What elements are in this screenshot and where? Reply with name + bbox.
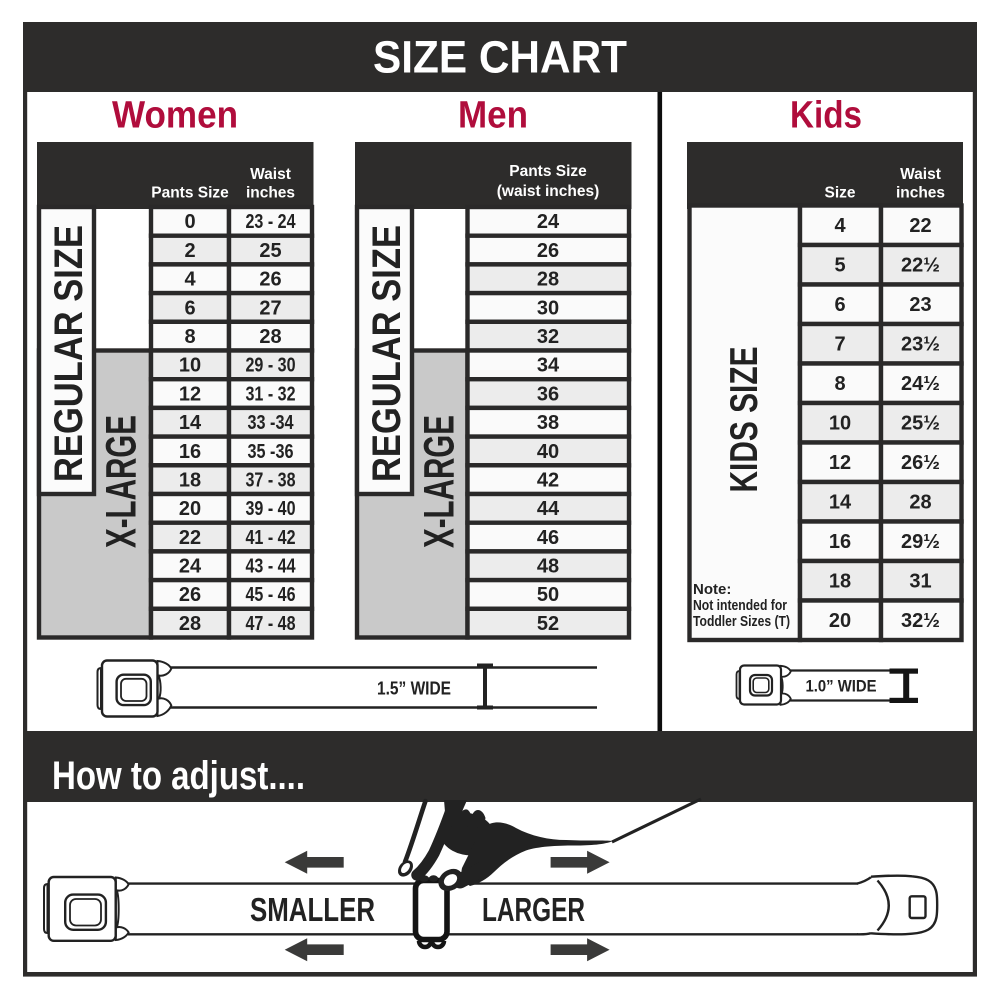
svg-text:41 - 42: 41 - 42 [246,527,296,549]
svg-text:12: 12 [829,452,851,474]
svg-text:Toddler Sizes (T): Toddler Sizes (T) [693,613,790,630]
svg-text:31 - 32: 31 - 32 [246,383,296,405]
svg-text:SMALLER: SMALLER [250,891,375,928]
svg-text:18: 18 [179,470,201,492]
svg-text:(waist inches): (waist inches) [497,183,600,200]
svg-text:32½: 32½ [901,610,940,632]
svg-text:10: 10 [179,355,201,377]
svg-text:1.5” WIDE: 1.5” WIDE [377,679,451,699]
svg-text:27: 27 [259,297,281,319]
svg-text:29½: 29½ [901,531,940,553]
svg-text:44: 44 [537,498,560,520]
svg-text:43 - 44: 43 - 44 [246,556,297,578]
svg-text:8: 8 [834,373,845,395]
svg-text:Pants Size: Pants Size [509,163,587,180]
svg-text:inches: inches [896,185,945,202]
svg-text:Size: Size [824,185,855,202]
svg-text:Women: Women [112,95,238,137]
svg-text:30: 30 [537,297,559,319]
svg-text:2: 2 [184,240,195,262]
svg-text:X-LARGE: X-LARGE [416,415,464,548]
svg-text:31: 31 [909,571,931,593]
svg-text:23½: 23½ [901,334,940,356]
svg-text:22: 22 [909,215,931,237]
svg-text:Not intended for: Not intended for [693,597,787,614]
svg-text:28: 28 [537,269,559,291]
svg-text:22½: 22½ [901,255,940,277]
svg-text:14: 14 [179,412,202,434]
svg-text:20: 20 [829,610,851,632]
svg-text:6: 6 [834,294,845,316]
svg-text:18: 18 [829,571,851,593]
svg-text:26: 26 [179,584,201,606]
svg-text:SIZE CHART: SIZE CHART [373,32,627,83]
svg-text:26: 26 [259,269,281,291]
svg-text:26: 26 [537,240,559,262]
svg-text:Kids: Kids [790,95,862,137]
svg-text:26½: 26½ [901,452,940,474]
svg-text:How to adjust....: How to adjust.... [52,754,305,798]
svg-text:24: 24 [537,211,560,233]
svg-text:28: 28 [259,326,281,348]
svg-text:5: 5 [834,255,845,277]
svg-text:36: 36 [537,383,559,405]
svg-text:1.0” WIDE: 1.0” WIDE [806,677,877,696]
svg-text:24: 24 [179,556,202,578]
svg-text:4: 4 [184,269,196,291]
svg-text:28: 28 [179,613,201,635]
svg-text:52: 52 [537,613,559,635]
svg-text:28: 28 [909,492,931,514]
svg-text:X-LARGE: X-LARGE [98,415,146,548]
svg-text:50: 50 [537,584,559,606]
svg-text:Waist: Waist [900,166,941,183]
svg-text:REGULAR SIZE: REGULAR SIZE [47,225,91,482]
svg-text:Pants Size: Pants Size [151,185,229,202]
svg-text:34: 34 [537,355,560,377]
svg-text:24½: 24½ [901,373,940,395]
svg-text:8: 8 [184,326,195,348]
svg-text:16: 16 [829,531,851,553]
svg-text:16: 16 [179,441,201,463]
svg-text:32: 32 [537,326,559,348]
svg-text:42: 42 [537,470,559,492]
svg-text:inches: inches [246,185,295,202]
svg-text:KIDS SIZE: KIDS SIZE [723,347,766,493]
svg-text:29 - 30: 29 - 30 [246,355,296,377]
svg-text:14: 14 [829,492,852,514]
svg-text:0: 0 [184,211,195,233]
svg-text:38: 38 [537,412,559,434]
svg-text:Men: Men [458,95,528,137]
svg-text:33 -34: 33 -34 [248,412,295,434]
svg-text:REGULAR SIZE: REGULAR SIZE [365,225,409,482]
svg-text:40: 40 [537,441,559,463]
svg-text:10: 10 [829,413,851,435]
svg-text:4: 4 [834,215,846,237]
svg-text:23: 23 [909,294,931,316]
svg-text:39 - 40: 39 - 40 [246,498,296,520]
svg-text:35 -36: 35 -36 [248,441,294,463]
svg-text:25½: 25½ [901,413,940,435]
svg-text:Waist: Waist [250,166,291,183]
svg-text:12: 12 [179,383,201,405]
svg-text:22: 22 [179,527,201,549]
svg-text:46: 46 [537,527,559,549]
svg-text:7: 7 [834,334,845,356]
svg-text:Note:: Note: [693,581,731,598]
svg-text:47 - 48: 47 - 48 [246,613,296,635]
svg-text:48: 48 [537,556,559,578]
svg-text:20: 20 [179,498,201,520]
svg-text:37 - 38: 37 - 38 [246,470,296,492]
svg-text:LARGER: LARGER [482,891,585,928]
svg-text:25: 25 [259,240,281,262]
svg-text:6: 6 [184,297,195,319]
svg-text:23 - 24: 23 - 24 [246,211,297,233]
svg-text:45 - 46: 45 - 46 [246,584,296,606]
